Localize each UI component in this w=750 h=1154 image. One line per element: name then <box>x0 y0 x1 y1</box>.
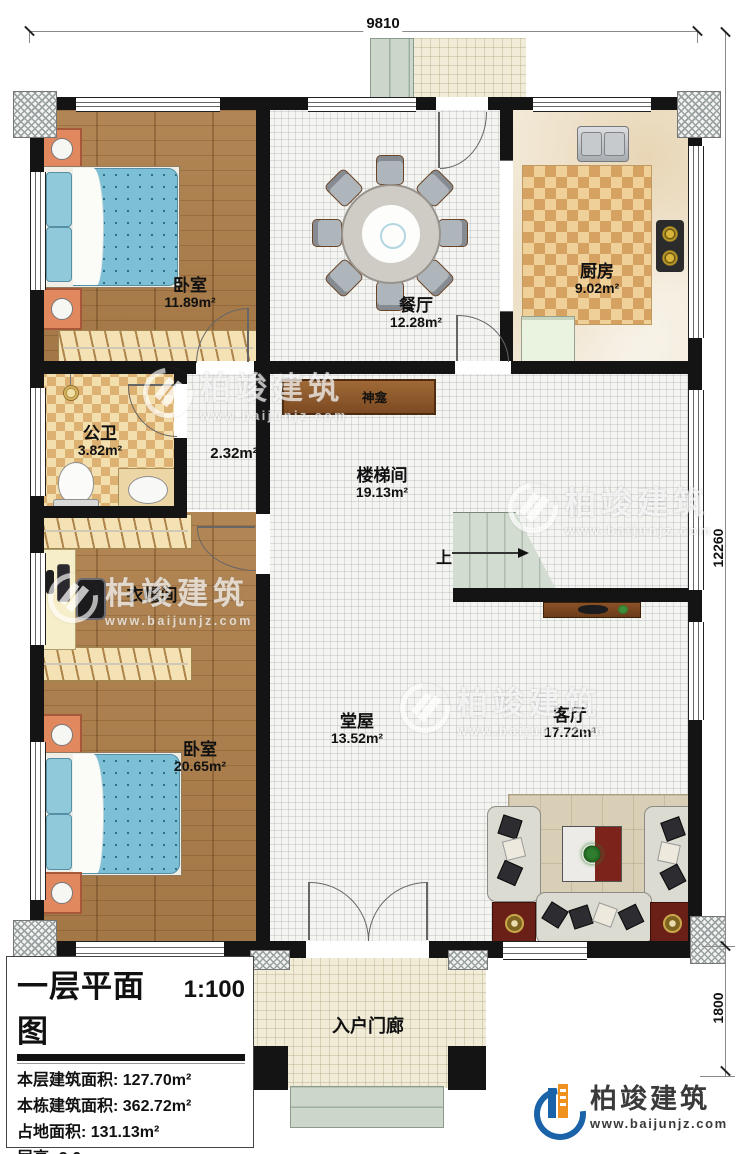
company-logo: 柏竣建筑 www.baijunjz.com <box>532 1082 728 1134</box>
logo-window <box>560 1089 566 1092</box>
logo-window <box>560 1096 566 1099</box>
shrine-table <box>282 379 436 415</box>
room-label-bedroom-top: 卧室 11.89m² <box>164 276 215 311</box>
corner-pillar <box>677 91 721 138</box>
room-label-bathroom: 公卫 3.82m² <box>78 424 122 459</box>
coffee-table <box>562 826 622 882</box>
dining-chair <box>438 219 468 247</box>
nightstand <box>42 872 82 914</box>
lamp-cord <box>70 372 71 386</box>
floor-plan-canvas: 神龛 上 <box>0 0 750 1154</box>
perfume-bottle <box>46 570 54 594</box>
wardrobe-cloak-bottom <box>40 647 192 681</box>
window <box>30 388 46 496</box>
sofa-pillow <box>618 904 645 931</box>
room-label-stairwell: 楼梯间 19.13m² <box>356 466 408 501</box>
window <box>688 146 704 338</box>
plan-scale: 1:100 <box>184 976 245 1004</box>
sofa-pillow <box>568 904 593 929</box>
mirror <box>57 564 70 602</box>
window <box>503 941 587 960</box>
side-table-left <box>492 902 536 944</box>
window <box>308 97 416 112</box>
burner <box>662 226 678 242</box>
door-opening-stair-dining <box>455 361 511 374</box>
wash-basin <box>128 476 168 504</box>
window <box>688 622 704 720</box>
dressing-chair <box>76 578 106 620</box>
shrine-label: 神龛 <box>362 387 387 406</box>
dimension-ext <box>700 1076 735 1077</box>
pillow <box>46 172 72 227</box>
opening-kitchen-pass <box>500 160 513 312</box>
window <box>533 97 651 112</box>
room-label-main-hall: 堂屋 13.52m² <box>331 712 383 747</box>
terrace-floor <box>412 38 526 100</box>
company-name: 柏竣建筑 <box>590 1086 728 1113</box>
room-label-living-room: 客厅 17.72m² <box>544 706 596 741</box>
door-opening-terrace <box>436 97 488 110</box>
room-label-kitchen: 厨房 9.02m² <box>575 262 619 297</box>
window <box>30 172 46 290</box>
logo-building-blue <box>548 1088 556 1118</box>
plan-title: 一层平面图 <box>17 961 174 1051</box>
duvet <box>73 168 178 286</box>
sofa-pillow <box>592 902 618 928</box>
door-opening-cloakroom <box>256 514 270 574</box>
stairs-direction-arrow <box>518 548 529 558</box>
stat-building-area: 本栋建筑面积: 362.72m² <box>17 1094 245 1120</box>
window <box>76 97 220 112</box>
terrace-steps <box>370 38 414 102</box>
sofa-pillow <box>497 814 522 839</box>
sofa-bottom <box>536 892 652 944</box>
sofa-left <box>487 806 541 902</box>
bed-bottom <box>40 752 182 876</box>
window <box>30 742 46 900</box>
pillow <box>46 758 72 814</box>
room-label-dining: 餐厅 12.28m² <box>390 296 442 331</box>
tv-cabinet <box>543 602 641 618</box>
logo-window <box>560 1103 566 1106</box>
sofa-pillow <box>502 837 526 861</box>
room-label-hallway: 2.32m² <box>210 446 258 463</box>
floor-hallway <box>178 368 260 510</box>
dining-table <box>341 184 441 284</box>
kitchen-sink <box>577 126 629 162</box>
dimension-ext <box>702 946 735 947</box>
dining-chair <box>312 219 342 247</box>
stat-floor-area: 本层建筑面积: 127.70m² <box>17 1068 245 1094</box>
dimension-line-right-main <box>725 33 726 947</box>
stat-floor-height: 层高: 3.6m <box>17 1146 245 1154</box>
table-plant <box>582 844 602 864</box>
ceiling-lamp <box>63 385 79 401</box>
porch-pillar-right <box>448 1046 486 1090</box>
entry-porch-steps <box>290 1086 444 1128</box>
title-block: 一层平面图 1:100 本层建筑面积: 127.70m² 本栋建筑面积: 362… <box>6 956 254 1148</box>
sink-bowl <box>604 132 625 156</box>
porch-pillar-hatch <box>448 950 488 970</box>
dimension-top-value: 9810 <box>363 15 402 32</box>
room-label-cloakroom: 衣帽间 <box>127 586 178 605</box>
wall-bath-bottom <box>30 506 187 518</box>
kitchen-rug <box>522 165 652 325</box>
sofa-pillow <box>541 901 569 929</box>
tv <box>578 605 608 614</box>
company-logo-icon <box>532 1082 582 1134</box>
stairs-up-label: 上 <box>436 544 452 568</box>
room-label-entry-porch: 入户门廊 <box>332 1016 404 1036</box>
plant <box>618 605 628 614</box>
bed-top <box>40 166 180 288</box>
corner-pillar <box>13 91 57 138</box>
window <box>688 390 704 590</box>
nightstand <box>42 714 82 756</box>
nightstand <box>42 288 82 330</box>
stat-footprint-area: 占地面积: 131.13m² <box>17 1120 245 1146</box>
window <box>30 553 46 645</box>
company-website: www.baijunjz.com <box>590 1116 728 1131</box>
room-label-bedroom-bottom: 卧室 20.65m² <box>174 740 226 775</box>
wardrobe-cloak-top <box>40 514 192 549</box>
stairs-direction-line <box>452 552 522 554</box>
dining-chair <box>376 155 404 185</box>
title-row: 一层平面图 1:100 <box>17 961 245 1051</box>
pillow <box>46 814 72 870</box>
porch-pillar-hatch <box>250 950 290 970</box>
dimension-right-main-value: 12260 <box>710 518 726 578</box>
wall-stair-bottom <box>453 588 702 602</box>
sofa-pillow <box>657 841 681 865</box>
title-divider-bar <box>17 1054 245 1061</box>
sofa-pillow <box>497 860 523 886</box>
porch-pillar-left <box>250 1046 288 1090</box>
pillow <box>46 227 72 282</box>
title-divider-line <box>17 1063 245 1064</box>
dimension-right-porch-value: 1800 <box>710 978 726 1038</box>
door-opening-entrance <box>306 941 429 958</box>
toilet <box>58 462 94 504</box>
sofa-pillow <box>659 863 686 890</box>
duvet <box>73 754 180 874</box>
stove <box>656 220 684 272</box>
sink-bowl <box>581 132 602 156</box>
burner <box>662 250 678 266</box>
sofa-pillow <box>660 816 686 842</box>
